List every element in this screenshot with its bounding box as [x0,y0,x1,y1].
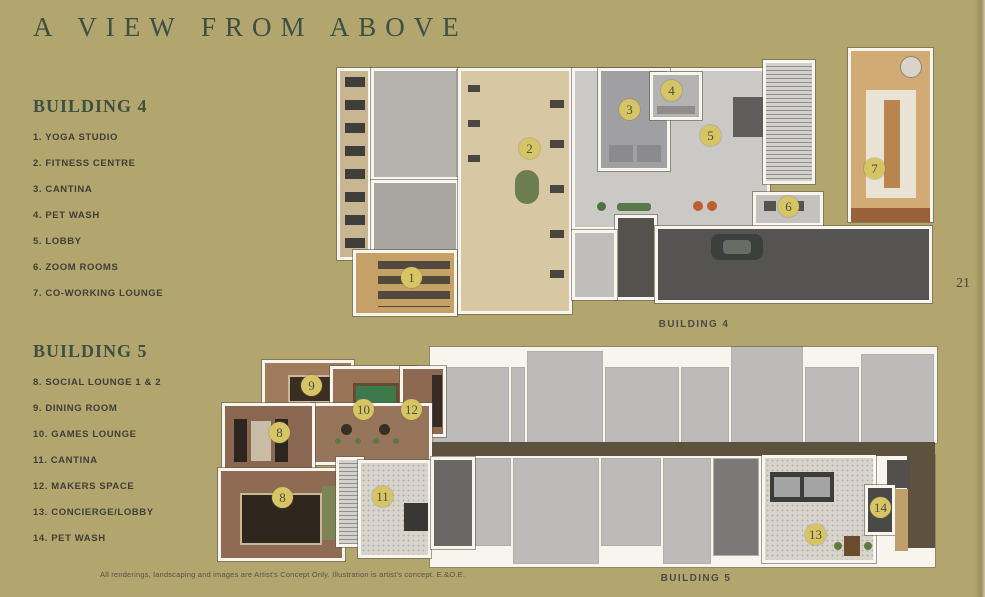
building5-caption: BUILDING 5 [596,573,796,584]
stairwell [763,60,815,184]
legend-item: 4. PET WASH [33,211,263,221]
room-marker: 1 [401,267,422,288]
concierge-desk [844,536,860,556]
residential-unit [664,459,710,563]
zoom-desk [764,201,776,211]
disclaimer-text: All renderings, landscaping and images a… [100,570,465,579]
orange-chair [693,201,703,211]
room-marker: 6 [778,196,799,217]
legend-building4-heading: BUILDING 4 [33,96,263,117]
chair [393,438,399,444]
elevator-core [770,472,834,502]
room-marker: 9 [301,375,322,396]
car-roof [723,240,751,254]
room-marker: 14 [870,497,891,518]
planter [617,203,651,211]
chair [864,542,872,550]
parked-cars [345,77,365,253]
room-marker: 10 [353,399,374,420]
residential-unit [806,368,858,442]
residential-unit [514,459,598,563]
room-marker: 3 [619,99,640,120]
page-edge-shading [975,0,985,597]
legend-item: 1. YOGA STUDIO [33,133,263,143]
room-marker: 11 [372,486,393,507]
social-lounge-1-room [222,403,315,472]
residential-unit [528,352,602,442]
gym-equipment [468,85,480,92]
gym-equipment [550,185,564,193]
room-marker: 7 [864,158,885,179]
legend-item: 5. LOBBY [33,237,263,247]
gym-equipment [550,270,564,278]
gym-equipment [468,155,480,162]
round-table [900,56,922,78]
storage-room [371,180,459,260]
residential-unit [682,368,728,442]
parking-strip [337,68,371,260]
residential-unit [606,368,678,442]
wood-strip [895,489,908,551]
residential-unit [512,368,524,442]
gym-equipment [550,100,564,108]
car [711,234,763,260]
cantina-seat [637,145,661,162]
room-marker: 13 [805,524,826,545]
room-marker: 12 [401,399,422,420]
chair [355,438,361,444]
building4-caption: BUILDING 4 [594,319,794,330]
page-number: 21 [956,276,970,292]
building5-floorplan: 9 10 12 8 8 11 13 14 BUILDING 5 [215,343,937,585]
driveway [655,226,932,303]
corridor [572,230,617,300]
cafe-table [379,424,390,435]
deck-strip [851,208,930,222]
residential-unit [602,459,660,545]
legend-building4: BUILDING 4 1. YOGA STUDIO 2. FITNESS CEN… [33,96,263,315]
garage-ramp [371,68,459,180]
room-marker: 8 [269,422,290,443]
washrooms [431,457,475,549]
legend-building4-list: 1. YOGA STUDIO 2. FITNESS CENTRE 3. CANT… [33,133,263,299]
residential-unit [732,347,802,442]
chair [373,438,379,444]
room-marker: 4 [661,80,682,101]
corridor [907,456,935,548]
chair [834,542,842,550]
lounge-rug [251,421,271,461]
plant [597,202,606,211]
co-working-lounge-room [848,48,933,222]
utility-room [887,460,911,488]
chair [335,438,341,444]
room-marker: 5 [700,125,721,146]
legend-item: 6. ZOOM ROOMS [33,263,263,273]
residential-unit [862,355,933,442]
cafe-table [341,424,352,435]
legend-item: 2. FITNESS CENTRE [33,159,263,169]
washrooms [615,215,657,300]
cantina-room [358,460,431,558]
social-lounge-2-room [218,468,345,561]
room-marker: 2 [519,138,540,159]
residential-unit [714,459,758,555]
page-title: A VIEW FROM ABOVE [33,12,468,43]
cantina-seat [609,145,633,162]
wash-counter [657,106,695,114]
work-table [884,100,900,188]
legend-item: 7. CO-WORKING LOUNGE [33,289,263,299]
room-marker: 8 [272,487,293,508]
shelving [432,375,442,427]
sofa [234,419,247,462]
orange-chair [707,201,717,211]
fitness-rug [515,170,539,204]
cantina-counter [404,503,428,531]
elevator-core [733,97,763,137]
legend-item: 3. CANTINA [33,185,263,195]
building4-floorplan: 1 2 3 4 5 6 7 BUILDING 4 [335,45,935,335]
gym-equipment [468,120,480,127]
concierge-lobby-room [762,455,876,563]
elevator-cab [774,477,800,497]
brochure-page: A VIEW FROM ABOVE 21 BUILDING 4 1. YOGA … [0,0,985,597]
elevator-cab [804,477,830,497]
gym-equipment [550,230,564,238]
gym-equipment [550,140,564,148]
